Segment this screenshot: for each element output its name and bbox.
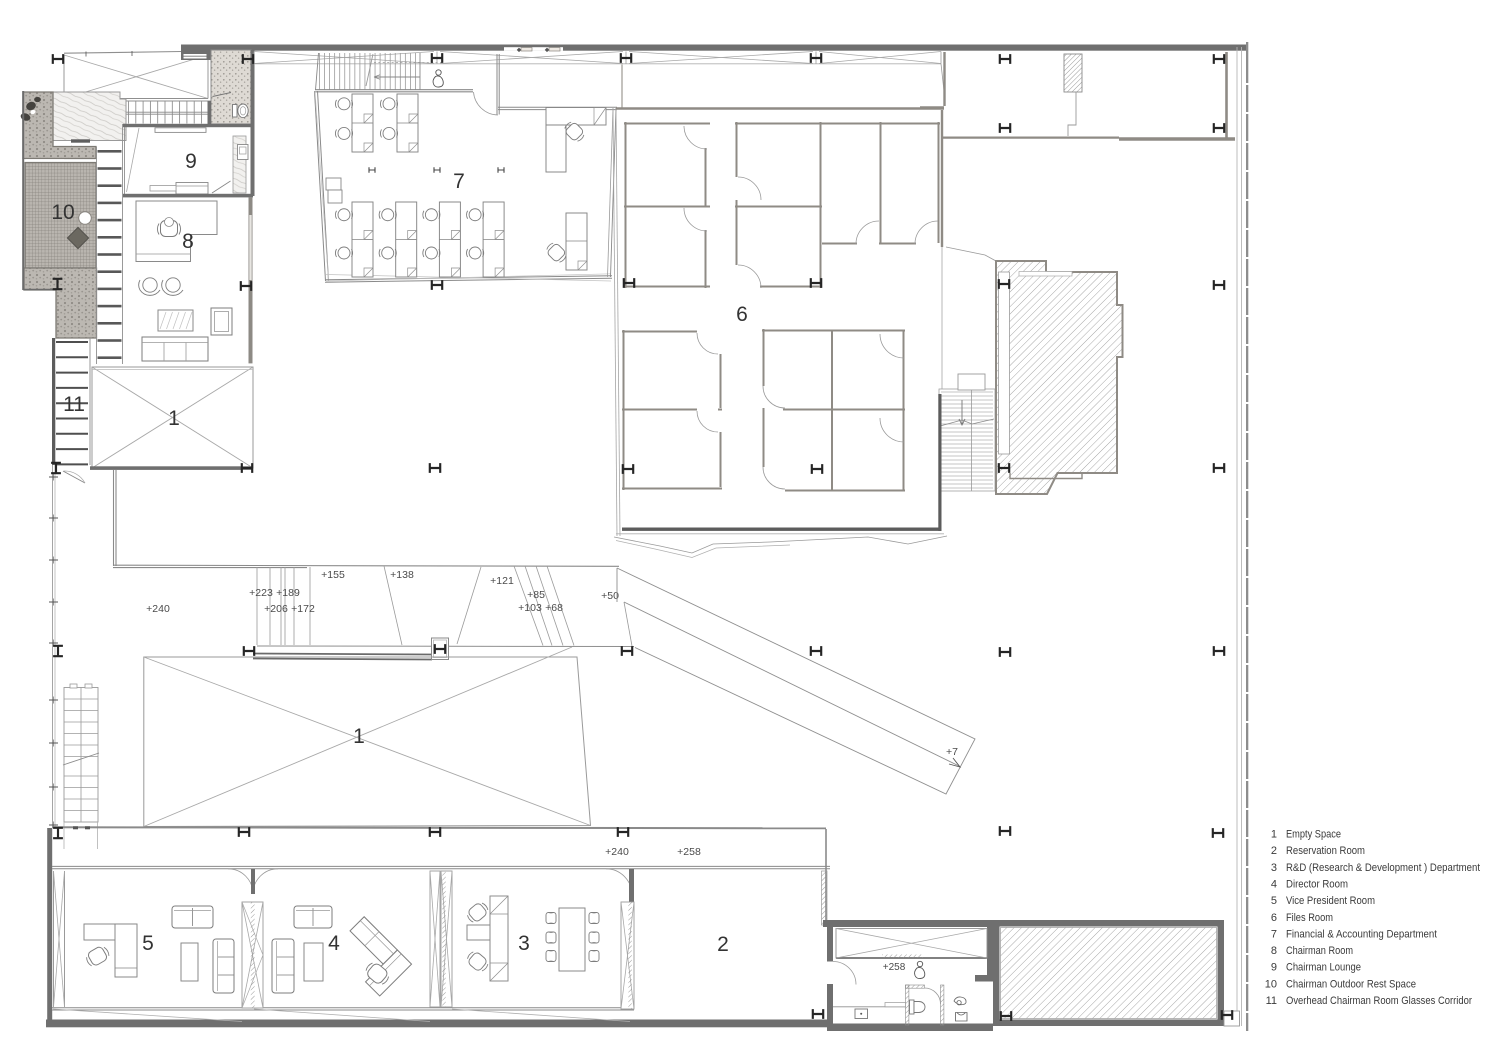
svg-text:+103: +103 [518,602,542,614]
svg-text:6: 6 [736,303,748,326]
svg-text:+121: +121 [490,575,514,587]
svg-text:+85: +85 [527,589,545,601]
svg-text:+68: +68 [545,602,563,614]
svg-text:10: 10 [51,201,74,224]
svg-text:Vice President Room: Vice President Room [1286,895,1375,907]
svg-text:5: 5 [1271,895,1277,907]
svg-text:6: 6 [1271,912,1277,924]
svg-text:3: 3 [1271,862,1277,874]
svg-text:3: 3 [518,932,530,955]
svg-text:1: 1 [1271,829,1277,841]
svg-text:+7: +7 [946,746,958,758]
svg-text:+206: +206 [264,603,288,615]
svg-text:Reservation Room: Reservation Room [1286,845,1365,857]
svg-text:4: 4 [1271,878,1277,890]
svg-text:+172: +172 [291,603,315,615]
svg-text:+138: +138 [390,569,414,581]
svg-text:8: 8 [182,230,194,253]
svg-text:Overhead Chairman Room Glasses: Overhead Chairman Room Glasses Corridor [1286,995,1472,1007]
svg-text:2: 2 [1271,845,1277,857]
svg-text:+50: +50 [601,590,619,602]
svg-text:1: 1 [168,407,180,430]
svg-text:5: 5 [142,932,154,955]
svg-text:+155: +155 [321,569,345,581]
svg-text:+240: +240 [146,603,170,615]
svg-text:Director Room: Director Room [1286,878,1348,890]
svg-text:11: 11 [63,393,85,416]
svg-text:+189: +189 [276,587,300,599]
svg-text:Chairman Lounge: Chairman Lounge [1286,962,1361,974]
svg-text:8: 8 [1271,945,1277,957]
svg-text:7: 7 [1271,928,1277,940]
svg-text:R&D (Research & Development ): R&D (Research & Development ) Department [1286,862,1480,874]
svg-text:7: 7 [453,170,465,193]
svg-text:+240: +240 [605,846,629,858]
svg-text:9: 9 [1271,962,1277,974]
svg-text:9: 9 [185,150,197,173]
svg-text:Empty Space: Empty Space [1286,829,1341,841]
svg-text:4: 4 [328,932,340,955]
svg-text:2: 2 [717,933,729,956]
svg-text:10: 10 [1265,978,1277,990]
svg-text:Files Room: Files Room [1286,912,1333,924]
svg-text:Chairman Outdoor Rest Space: Chairman Outdoor Rest Space [1286,978,1416,990]
svg-text:+258: +258 [883,962,906,973]
svg-text:+258: +258 [677,846,701,858]
svg-text:+223: +223 [249,587,273,599]
svg-text:Chairman Room: Chairman Room [1286,945,1353,957]
svg-text:Financial & Accounting Departm: Financial & Accounting Department [1286,928,1437,940]
svg-text:11: 11 [1266,995,1277,1007]
svg-text:1: 1 [353,725,365,748]
